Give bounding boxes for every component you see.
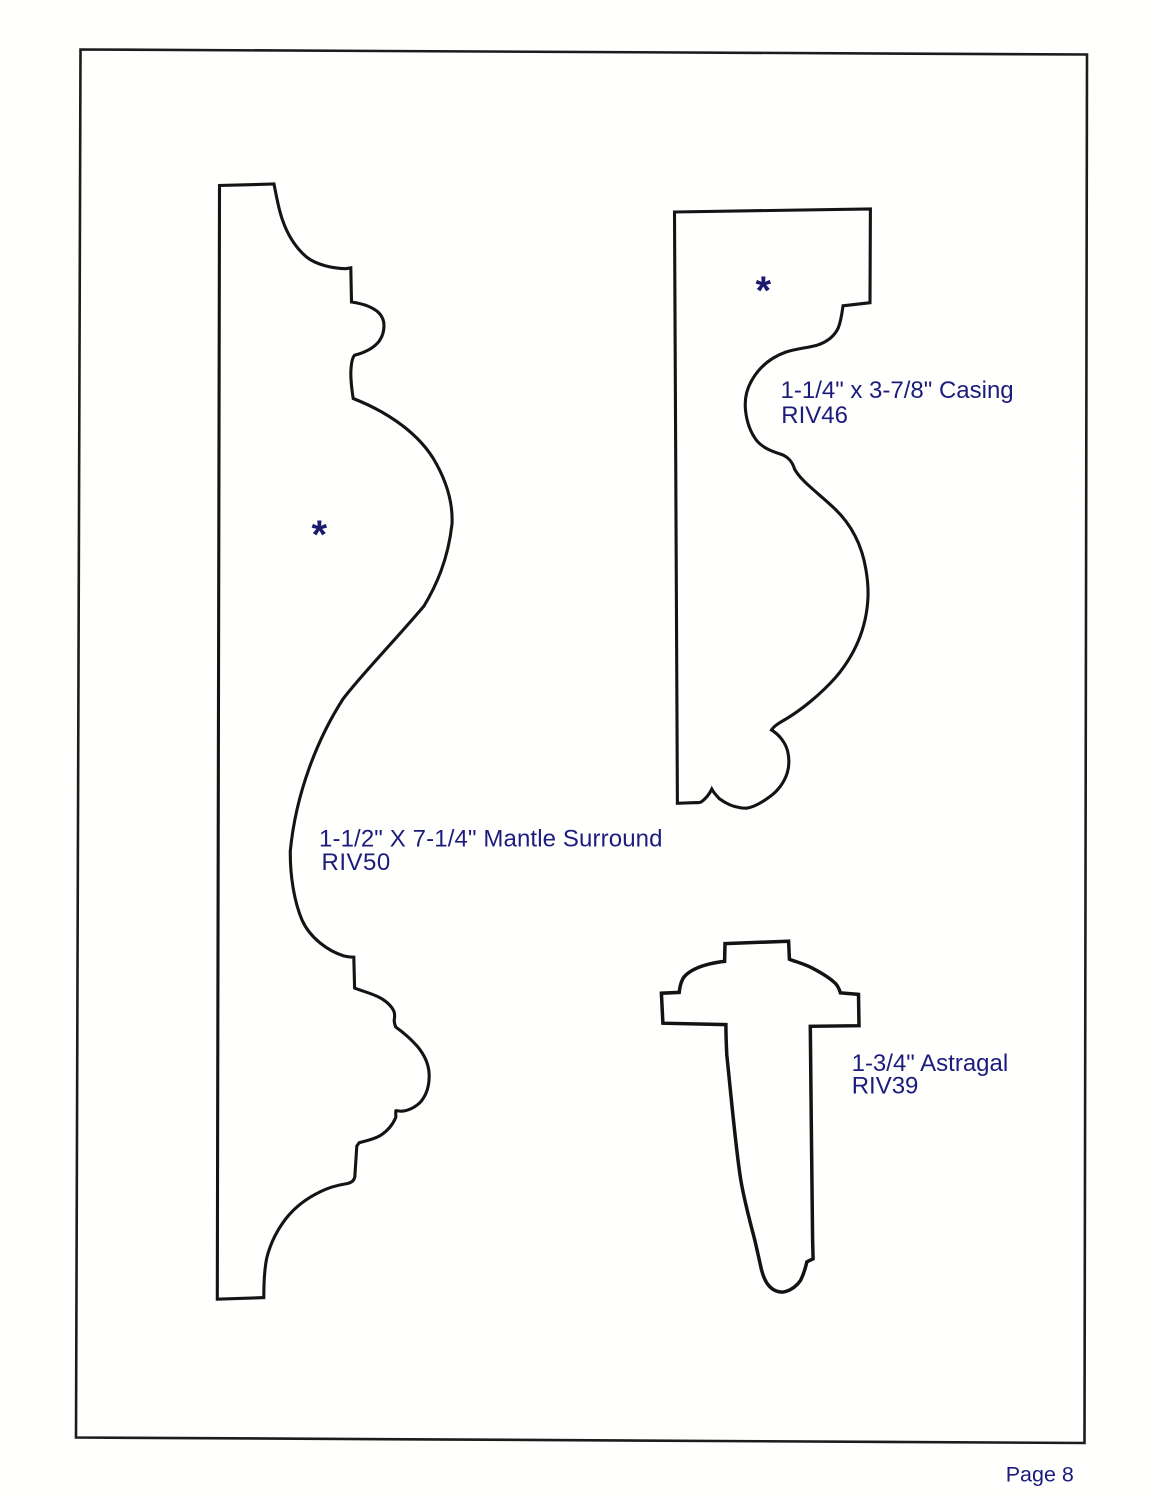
svg-text:RIV50: RIV50 <box>322 849 391 876</box>
svg-text:1-1/4" x 3-7/8" Casing: 1-1/4" x 3-7/8" Casing <box>781 377 1014 404</box>
svg-text:Page 8: Page 8 <box>1006 1463 1074 1487</box>
svg-text:*: * <box>312 513 328 557</box>
svg-text:*: * <box>756 269 772 313</box>
svg-text:RIV39: RIV39 <box>852 1072 919 1099</box>
svg-text:RIV46: RIV46 <box>781 402 848 429</box>
